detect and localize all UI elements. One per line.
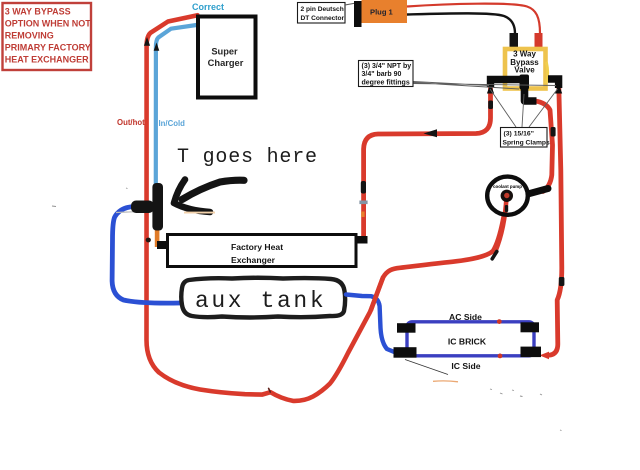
svg-text:HEAT EXCHANGER: HEAT EXCHANGER — [5, 55, 89, 65]
svg-text:AC Side: AC Side — [449, 312, 482, 322]
svg-text:In/Cold: In/Cold — [159, 119, 186, 128]
svg-text:REMOVING: REMOVING — [5, 31, 54, 41]
svg-text:Exchanger: Exchanger — [231, 255, 276, 265]
svg-text:3/4" barb 90: 3/4" barb 90 — [362, 71, 402, 78]
svg-text:2 pin Deutsch: 2 pin Deutsch — [301, 6, 344, 13]
svg-text:degree fittings: degree fittings — [362, 80, 410, 87]
svg-text:Factory Heat: Factory Heat — [231, 242, 283, 252]
svg-text:(3) 3/4" NPT by: (3) 3/4" NPT by — [362, 63, 412, 70]
svg-text:(3) 15/16": (3) 15/16" — [504, 131, 534, 138]
svg-text:Plug 1: Plug 1 — [370, 8, 394, 17]
svg-text:Super: Super — [211, 47, 238, 57]
svg-text:PRIMARY FACTORY: PRIMARY FACTORY — [5, 43, 91, 53]
svg-text:Spring Clamps: Spring Clamps — [503, 140, 550, 147]
svg-text:DT Connector: DT Connector — [301, 15, 345, 22]
svg-text:Valve: Valve — [514, 66, 535, 75]
svg-text:OPTION WHEN NOT: OPTION WHEN NOT — [5, 19, 91, 29]
svg-text:Out/hot: Out/hot — [117, 118, 145, 127]
svg-text:3 WAY BYPASS: 3 WAY BYPASS — [5, 7, 71, 17]
svg-text:aux tank: aux tank — [195, 288, 326, 314]
svg-text:Correct: Correct — [192, 2, 224, 12]
svg-text:IC Side: IC Side — [451, 361, 480, 371]
svg-text:T goes here: T goes here — [177, 146, 318, 169]
svg-text:Charger: Charger — [208, 58, 244, 68]
svg-text:IC BRICK: IC BRICK — [448, 337, 487, 347]
svg-text:coolant pump: coolant pump — [493, 184, 522, 189]
